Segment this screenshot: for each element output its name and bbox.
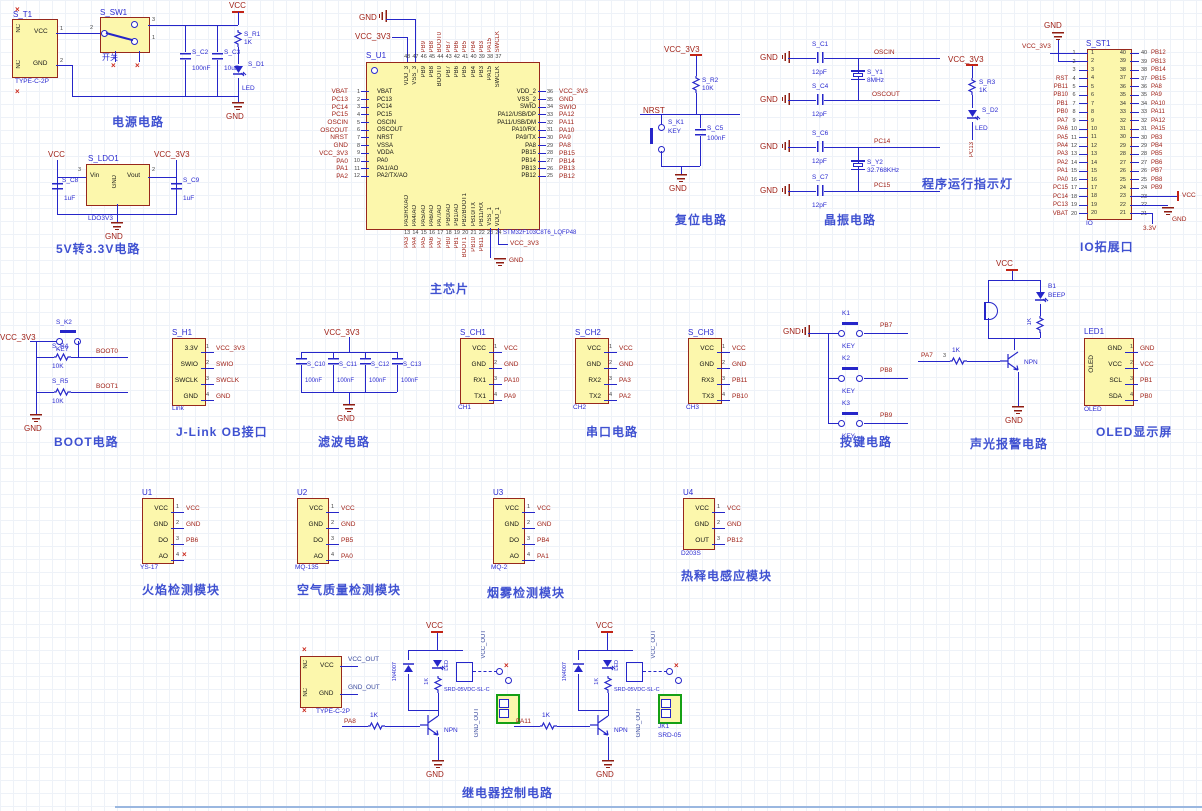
- pin-row[interactable]: SDA 4 PB0: [1086, 388, 1154, 404]
- designator: U4: [683, 489, 693, 497]
- net-label: PA7: [437, 237, 443, 248]
- pin-wire: [538, 145, 546, 146]
- mcu-pin-row[interactable]: SWIO 34 SWIO: [474, 103, 588, 111]
- net-label: PB5: [462, 41, 468, 52]
- pin-number: 12: [1091, 142, 1097, 150]
- mcu-pin-row[interactable]: GND 8 VSSA: [292, 142, 408, 150]
- pin-number: 35: [1102, 91, 1126, 99]
- pin-number: 20: [461, 230, 469, 236]
- pin-row[interactable]: DO 3 PB4: [493, 532, 551, 548]
- pin-number: 19: [453, 230, 461, 236]
- io-pin-row[interactable]: PA3 13: [1038, 150, 1088, 158]
- io-pin-row[interactable]: 40 PB12: [1130, 49, 1166, 57]
- resistor[interactable]: [234, 30, 242, 47]
- pin-row[interactable]: GND 4 GND: [172, 388, 245, 404]
- npn-transistor[interactable]: [1000, 348, 1022, 374]
- pin-row[interactable]: TX2 4 PA2: [575, 388, 633, 404]
- pin-wire: [538, 130, 546, 131]
- uart-ch1-pins: VCC 1 VCC GND 2 GND RX1 3 PA10 TX1 4 PA9: [460, 340, 519, 404]
- pin-number: 31: [1102, 125, 1126, 133]
- net-label-gnd: GND: [596, 771, 614, 779]
- key-button[interactable]: [60, 330, 76, 333]
- wire: [1139, 213, 1152, 214]
- io-pin-row[interactable]: 38 PB14: [1130, 66, 1166, 74]
- value: 1uF: [183, 196, 194, 203]
- pin-wire: [538, 137, 546, 138]
- pin-number: 27: [546, 158, 557, 164]
- pin-name: VCC: [575, 345, 604, 352]
- pin-name: PA3/RX/AO: [404, 195, 410, 226]
- mcu-pin-row[interactable]: VSS_2 35 GND: [474, 96, 588, 104]
- designator: K3: [842, 401, 850, 408]
- key-button[interactable]: [842, 367, 858, 370]
- npn-transistor[interactable]: [590, 712, 612, 738]
- schematic-canvas[interactable]: S_T1 NC NC VCC GND 1 2 TYPE-C-2P × × S_S…: [0, 0, 1202, 811]
- io-pin-row[interactable]: 32 PA12: [1130, 117, 1166, 125]
- io-pin-row[interactable]: 28 PB5: [1130, 150, 1166, 158]
- io-pin-row[interactable]: 37 PB15: [1130, 74, 1166, 82]
- no-connect-mark: ×: [15, 88, 20, 96]
- mcu-pin-row[interactable]: PA8 29 PA8: [474, 142, 588, 150]
- relay-coil[interactable]: [626, 662, 643, 682]
- wire: [56, 65, 72, 66]
- pin-row[interactable]: GND 2 GND: [460, 356, 519, 372]
- wire: [72, 65, 73, 96]
- io-pin-row[interactable]: PC14 18: [1038, 192, 1088, 200]
- io-pin-row[interactable]: PA2 14: [1038, 159, 1088, 167]
- pin-row[interactable]: GND 2 GND: [683, 516, 743, 532]
- capacitor[interactable]: [328, 357, 339, 365]
- pin-wire: [1130, 137, 1139, 138]
- pin-number: 2: [1069, 59, 1079, 65]
- pin-number: 41: [461, 54, 469, 60]
- pin-name: PB10/TX: [471, 202, 477, 226]
- value: 12pF: [812, 70, 827, 77]
- diode-1n4007[interactable]: [402, 660, 416, 674]
- gnd-symbol: [432, 760, 444, 768]
- net-label: SWCLK: [214, 377, 239, 384]
- net-label: PC13: [292, 96, 350, 103]
- name-cell: VSS_3: [411, 66, 419, 85]
- pin-row[interactable]: OUT 3 PB12: [683, 532, 743, 548]
- pin-number: 16: [428, 230, 436, 236]
- mcu-pin-row[interactable]: PC14 3 PC14: [292, 103, 408, 111]
- pin-number: 19: [1069, 202, 1079, 208]
- mcu-pin-row[interactable]: PA11/USB/DM 32 PA11: [474, 119, 588, 127]
- resistor[interactable]: [54, 353, 71, 361]
- capacitor[interactable]: [212, 52, 223, 60]
- wire: [661, 151, 662, 166]
- net-label: PB7: [1149, 168, 1162, 174]
- pin-row[interactable]: VCC 1 VCC: [460, 340, 519, 356]
- value: 100nF: [401, 378, 418, 384]
- wire: [696, 93, 697, 114]
- wire: [788, 191, 816, 192]
- pin-row[interactable]: GND 2 GND: [493, 516, 551, 532]
- pin-name: PC15: [369, 112, 392, 118]
- wire: [36, 357, 54, 358]
- resistor[interactable]: [434, 676, 442, 693]
- io-pin-row[interactable]: 34 PA10: [1130, 100, 1166, 108]
- designator: S_C2: [192, 50, 208, 57]
- mcu-pin-row[interactable]: PA0 10 PA0: [292, 157, 408, 165]
- pin-row[interactable]: TX1 4 PA9: [460, 388, 519, 404]
- designator: S_C1: [812, 42, 828, 49]
- net-label: PB10: [1038, 92, 1069, 98]
- pin-number: 4: [326, 551, 339, 560]
- value: LED: [975, 126, 988, 133]
- pin-name: OUT: [683, 537, 712, 544]
- pin-name: GND: [297, 521, 326, 528]
- pin-wire: [538, 122, 546, 123]
- resistor[interactable]: [54, 388, 71, 396]
- pin-number: 1: [522, 503, 535, 512]
- pin-number: 2: [350, 97, 361, 103]
- capacitor[interactable]: [171, 182, 182, 190]
- wire: [437, 633, 438, 650]
- pin-name: NC: [16, 24, 22, 33]
- gnd-symbol: [802, 325, 810, 337]
- io-pin-row[interactable]: 29 PB4: [1130, 142, 1166, 150]
- mcu-top-numbers: 484746454443424140393837: [403, 54, 503, 60]
- circuit-caption: J-Link OB接口: [176, 426, 268, 438]
- pin-wire: [1079, 213, 1088, 214]
- io-pin-row[interactable]: 26 PB7: [1130, 167, 1166, 175]
- capacitor[interactable]: [816, 52, 824, 63]
- key-circuit[interactable]: K2 KEY PB8: [828, 356, 958, 401]
- net-label-vcc: VCC: [1182, 193, 1196, 200]
- net-label: PB0: [1138, 393, 1152, 400]
- value: 1K: [1027, 318, 1033, 325]
- pin-row[interactable]: GND 2 GND: [297, 516, 355, 532]
- wire: [408, 650, 409, 660]
- pin-name: PA9/TX: [474, 135, 538, 141]
- net-label: PA11: [1149, 109, 1165, 115]
- relay-coil[interactable]: [456, 662, 473, 682]
- io-pin-row[interactable]: PB1 7: [1038, 100, 1088, 108]
- pin-name: GND: [319, 691, 333, 698]
- pin-number: 17: [436, 230, 444, 236]
- pin-number: 4: [350, 112, 361, 118]
- pin-row[interactable]: VCC 1 VCC: [493, 500, 551, 516]
- io-pin-row[interactable]: 27 PB6: [1130, 159, 1166, 167]
- net-label: PA15: [1149, 126, 1165, 132]
- screw-terminal[interactable]: [658, 694, 682, 724]
- net-label: PB7: [880, 323, 892, 330]
- wire: [342, 726, 368, 727]
- pin-number: 6: [1069, 92, 1079, 98]
- io-pin-row[interactable]: 2: [1038, 57, 1088, 65]
- wire: [238, 78, 239, 96]
- wire: [967, 361, 1000, 362]
- capacitor[interactable]: [816, 141, 824, 152]
- part-name: TYPE-C-2P: [15, 79, 49, 86]
- wire: [78, 341, 79, 357]
- pin-row[interactable]: RX3 3 PB11: [688, 372, 748, 388]
- pin-row[interactable]: VCC 1 VCC: [683, 500, 743, 516]
- pin-name: PB5: [462, 66, 468, 77]
- io-pin-row[interactable]: PB10 6: [1038, 91, 1088, 99]
- capacitor[interactable]: [816, 94, 824, 105]
- key-button[interactable]: [842, 412, 858, 415]
- pin-number: 8: [350, 143, 361, 149]
- resistor[interactable]: [368, 722, 385, 730]
- pin-name: AO: [493, 553, 522, 560]
- capacitor[interactable]: [180, 52, 191, 60]
- io-pin-row[interactable]: 35 PA9: [1130, 91, 1166, 99]
- io-pin-row[interactable]: 36 PA8: [1130, 83, 1166, 91]
- wire: [238, 12, 239, 25]
- net-label-vcc: VCC: [229, 2, 246, 10]
- pin-name: PB2/BOOT1: [462, 193, 468, 226]
- wire: [988, 280, 989, 302]
- io-pin-row[interactable]: PA1 15: [1038, 167, 1088, 175]
- pin-row[interactable]: DO 3 PB5: [297, 532, 355, 548]
- uart-ch3-pins: VCC 1 VCC GND 2 GND RX3 3 PB11 TX3 4 PB1…: [688, 340, 748, 404]
- io-pin-row[interactable]: PA4 12: [1038, 142, 1088, 150]
- wire: [117, 214, 118, 222]
- wire: [824, 147, 940, 148]
- key-circuit[interactable]: K1 KEY PB7: [828, 311, 958, 356]
- crystal-32khz[interactable]: [851, 160, 865, 170]
- pin-wire: [1079, 179, 1088, 180]
- pin-name: SCL: [1086, 377, 1125, 384]
- io-pin-row[interactable]: 31 PA15: [1130, 125, 1166, 133]
- pin-row[interactable]: SWIO 2 SWIO: [172, 356, 245, 372]
- wire: [301, 352, 397, 353]
- name-cell: VDD_3: [403, 66, 411, 85]
- mcu-pin-row[interactable]: PA2 12 PA2/TX/AO: [292, 173, 408, 181]
- designator: S_K1: [668, 120, 684, 127]
- pin-wire: [361, 122, 369, 123]
- pin-wire: [1079, 70, 1088, 71]
- resistor[interactable]: [540, 722, 557, 730]
- pin-wire: [1130, 154, 1139, 155]
- io-pin-row[interactable]: PA5 11: [1038, 133, 1088, 141]
- net-label: PA1: [1038, 168, 1069, 174]
- capacitor[interactable]: [392, 357, 403, 365]
- terminal-pin: [661, 699, 671, 708]
- net-label: PA7: [1038, 118, 1069, 124]
- value: LED: [615, 660, 621, 671]
- circuit-caption: 空气质量检测模块: [297, 584, 401, 596]
- wire: [385, 726, 420, 727]
- pin-row[interactable]: DO 3 PB6: [142, 532, 200, 548]
- io-pin-row[interactable]: PA0 16: [1038, 176, 1088, 184]
- pin-row[interactable]: SCL 3 PB1: [1086, 372, 1154, 388]
- io-pin-row[interactable]: 24 PB9: [1130, 184, 1166, 192]
- buzzer[interactable]: [984, 302, 998, 320]
- io-pin-row[interactable]: PA7 9: [1038, 117, 1088, 125]
- pin-number: 15: [1091, 167, 1097, 175]
- pin-row[interactable]: GND 1 GND: [1086, 340, 1154, 356]
- pin-number: 24: [1102, 184, 1126, 192]
- designator: S_CH3: [688, 329, 714, 337]
- value: 1K: [425, 678, 431, 685]
- contact: [496, 668, 503, 675]
- net-label: BOOT1: [462, 237, 468, 257]
- pin-row[interactable]: GND 2 GND: [688, 356, 748, 372]
- pin-number: 3: [712, 535, 725, 544]
- led[interactable]: [431, 658, 445, 672]
- capacitor[interactable]: [695, 128, 706, 136]
- wire: [788, 100, 816, 101]
- mcu-pin-row[interactable]: PA9/TX 30 PA9: [474, 134, 588, 142]
- pin-wire: [1130, 78, 1139, 79]
- uart-ch2-pins: VCC 1 VCC GND 2 GND RX2 3 PA3 TX2 4 PA2: [575, 340, 633, 404]
- io-pin-row[interactable]: PA6 10: [1038, 125, 1088, 133]
- part-name: STM32F103C8T6_LQFP48: [503, 230, 576, 236]
- mcu-pin-row[interactable]: PA10/RX 31 PA10: [474, 126, 588, 134]
- pin-row[interactable]: GND 2 GND: [575, 356, 633, 372]
- mcu-pin-row[interactable]: PB15 28 PB15: [474, 150, 588, 158]
- net-label: GND: [214, 393, 230, 400]
- pin-number: 28: [546, 150, 557, 156]
- mcu-pin-row[interactable]: VBAT 1 VBAT: [292, 88, 408, 96]
- key-button[interactable]: [650, 128, 653, 144]
- io-left-pins: 1 2 3 RST 4 PB11 5 PB10 6 PB1 7 PB0: [1038, 49, 1088, 218]
- no-connect-mark: ×: [302, 707, 307, 715]
- mcu-pin-row[interactable]: VCC_3V3 9 VDDA: [292, 150, 408, 158]
- net-label-gndout: GND_OUT: [348, 685, 380, 692]
- pin-name: RX1: [460, 377, 489, 384]
- pin-row[interactable]: SWCLK 3 SWCLK: [172, 372, 245, 388]
- pin-number: 18: [1069, 194, 1079, 200]
- io-pin-row[interactable]: PB11 5: [1038, 83, 1088, 91]
- value: 10K: [52, 399, 64, 406]
- mcu-pin-row[interactable]: PA12/USB/DP 33 PA12: [474, 111, 588, 119]
- net-label: PB10: [471, 237, 477, 252]
- io-pin-row[interactable]: 30 PB3: [1130, 133, 1166, 141]
- pin-row[interactable]: VCC 1 VCC: [142, 500, 200, 516]
- pin-row[interactable]: TX3 4 PB10: [688, 388, 748, 404]
- io-pin-row[interactable]: PC13 19: [1038, 201, 1088, 209]
- io-pin-row[interactable]: 25 PB8: [1130, 176, 1166, 184]
- key-button[interactable]: [842, 322, 858, 325]
- net-label-3v3: 3.3V: [1143, 226, 1156, 233]
- gnd-symbol: [782, 184, 790, 196]
- pin-row[interactable]: GND 2 GND: [142, 516, 200, 532]
- mcu-pin-row[interactable]: PC13 2 PC13: [292, 96, 408, 104]
- net-label: PA2: [617, 393, 631, 400]
- net-label: GND: [184, 521, 200, 528]
- wire: [640, 114, 740, 115]
- pin-number: 37: [1102, 74, 1126, 82]
- io-inner-left-numbers: 1234567891011121314151617181920: [1091, 49, 1097, 218]
- pin-name: GND: [112, 175, 118, 188]
- net-label-gnd: GND: [509, 258, 523, 265]
- pin-row[interactable]: VCC 1 VCC: [575, 340, 633, 356]
- capacitor[interactable]: [296, 357, 307, 365]
- wire: [397, 365, 398, 392]
- pin-row[interactable]: VCC 2 VCC: [1086, 356, 1154, 372]
- resistor[interactable]: [692, 76, 700, 93]
- crystal-8mhz[interactable]: [851, 70, 865, 80]
- io-pin-row[interactable]: PC15 17: [1038, 184, 1088, 192]
- net-label: PB6: [454, 41, 460, 52]
- mcu-pin-row[interactable]: VDD_2 36 VCC_3V3: [474, 88, 588, 96]
- wire: [71, 357, 128, 358]
- pin-row[interactable]: AO 4: [142, 548, 200, 564]
- pin-number: 9: [350, 150, 361, 156]
- resistor[interactable]: [950, 357, 967, 365]
- pin-number: 48: [403, 54, 411, 60]
- circuit-caption: 串口电路: [586, 426, 638, 438]
- mcu-pin-row[interactable]: PB14 27 PB14: [474, 157, 588, 165]
- wire: [578, 674, 579, 710]
- mcu-pin-row[interactable]: OSCIN 5 OSCIN: [292, 119, 408, 127]
- io-pin-row[interactable]: 39 PB13: [1130, 57, 1166, 65]
- name-cell: PB6: [453, 66, 461, 77]
- mcu-pin-row[interactable]: OSCOUT 6 OSCOUT: [292, 126, 408, 134]
- pin-number: 16: [1069, 177, 1079, 183]
- relay-contact-link: [473, 671, 497, 672]
- pin-row[interactable]: AO 4 PA0: [297, 548, 355, 564]
- pin-wire: [1079, 53, 1088, 54]
- pin-number: 27: [1102, 159, 1126, 167]
- pin-row[interactable]: RX2 3 PA3: [575, 372, 633, 388]
- pin-row[interactable]: VCC 1 VCC: [297, 500, 355, 516]
- pin-number: 44: [436, 54, 444, 60]
- pin-wire: [361, 130, 369, 131]
- circuit-caption: 按键电路: [840, 436, 892, 448]
- io-pin-row[interactable]: 3: [1038, 66, 1088, 74]
- io-pin-row[interactable]: PB0 8: [1038, 108, 1088, 116]
- io-pin-row[interactable]: 33 PA11: [1130, 108, 1166, 116]
- net-label: PB11: [479, 237, 485, 251]
- pin-row[interactable]: AO 4 PA1: [493, 548, 551, 564]
- mcu-pin-row[interactable]: PB13 26 PB13: [474, 165, 588, 173]
- net-label: GND: [557, 96, 573, 103]
- wire: [607, 633, 608, 650]
- pin-number: 1: [1069, 50, 1079, 56]
- resistor[interactable]: [604, 676, 612, 693]
- io-pin-row[interactable]: RST 4: [1038, 74, 1088, 82]
- pin-row[interactable]: RX1 3 PA10: [460, 372, 519, 388]
- led[interactable]: [1034, 290, 1048, 304]
- circuit-caption: 继电器控制电路: [462, 787, 553, 799]
- diode-1n4007[interactable]: [572, 660, 586, 674]
- pin-number: 30: [1102, 133, 1126, 141]
- pin-row[interactable]: VCC 1 VCC: [688, 340, 748, 356]
- mcu-pin-row[interactable]: PA1 11 PA1/AO: [292, 165, 408, 173]
- capacitor[interactable]: [816, 185, 824, 196]
- mcu-pin-row[interactable]: PC15 4 PC15: [292, 111, 408, 119]
- gnd-symbol: [379, 10, 387, 22]
- io-pin-row[interactable]: 1: [1038, 49, 1088, 57]
- wire: [185, 25, 186, 52]
- led[interactable]: [232, 64, 246, 78]
- ldo-regulator[interactable]: [86, 164, 150, 206]
- net-label-gnd: GND: [226, 113, 244, 121]
- led[interactable]: [966, 108, 980, 122]
- net-label: VCC_3V3: [557, 88, 588, 95]
- net-cell: PB8: [428, 12, 436, 52]
- pin-name: SWCLK: [495, 66, 501, 87]
- resistor[interactable]: [1036, 316, 1044, 333]
- npn-transistor[interactable]: [420, 712, 442, 738]
- capacitor[interactable]: [360, 357, 371, 365]
- pin-number: 29: [1102, 142, 1126, 150]
- net-label-vccout: VCC_OUT: [481, 630, 487, 659]
- pin-row[interactable]: 3.3V 1 VCC_3V3: [172, 340, 245, 356]
- net-label-gnd: GND: [760, 96, 778, 104]
- io-pin-row[interactable]: VBAT 20: [1038, 209, 1088, 217]
- mcu-pin-row[interactable]: NRST 7 NRST: [292, 134, 408, 142]
- led[interactable]: [601, 658, 615, 672]
- pin-number: 33: [1102, 108, 1126, 116]
- resistor[interactable]: [968, 78, 976, 95]
